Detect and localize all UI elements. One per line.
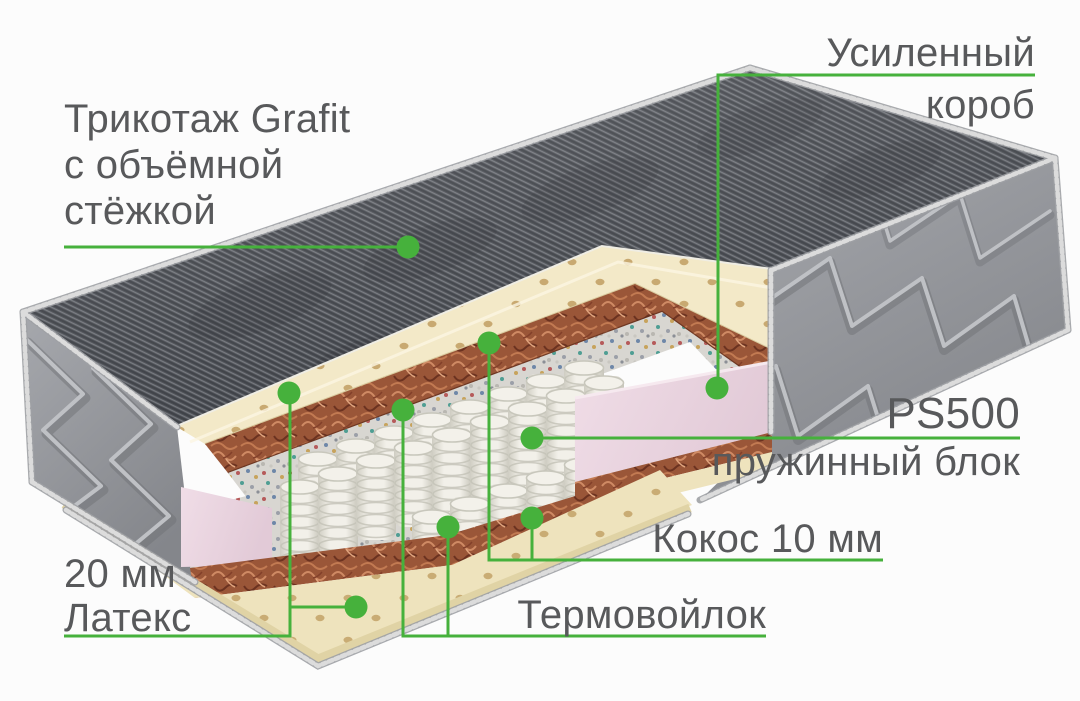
mattress-infographic: Трикотаж Grafit с объёмной стёжкой Усиле… — [0, 0, 1080, 701]
callout-dot-spring-block — [521, 427, 544, 450]
label-latex: 20 мм Латекс — [64, 552, 191, 640]
label-thermofelt: Термовойлок — [517, 592, 766, 638]
callout-dot-thermofelt-bottom — [437, 516, 460, 539]
label-knit-cover-line2: с объёмной — [64, 142, 350, 188]
label-spring-block-title: PS500 — [886, 392, 1020, 436]
label-reinforced-box-line1: Усиленный — [826, 30, 1035, 76]
label-latex-line2: Латекс — [64, 596, 191, 640]
callout-dot-latex-bottom — [345, 596, 368, 619]
callout-dot-knit-cover — [397, 236, 420, 259]
callout-dot-thermofelt-top — [392, 399, 415, 422]
label-spring-block-subtitle: пружинный блок — [712, 442, 1020, 482]
label-knit-cover-line1: Трикотаж Grafit — [64, 96, 350, 142]
callout-dot-coconut-top — [478, 332, 501, 355]
label-latex-line1: 20 мм — [64, 552, 191, 596]
label-reinforced-box-line2: короб — [926, 82, 1035, 128]
label-knit-cover-line3: стёжкой — [64, 188, 350, 234]
label-coconut: Кокос 10 мм — [652, 516, 883, 562]
callout-dot-coconut-bottom — [521, 507, 544, 530]
callout-dot-reinforced-box — [706, 377, 729, 400]
label-knit-cover: Трикотаж Grafit с объёмной стёжкой — [64, 96, 350, 234]
callout-dot-latex-top — [278, 382, 301, 405]
